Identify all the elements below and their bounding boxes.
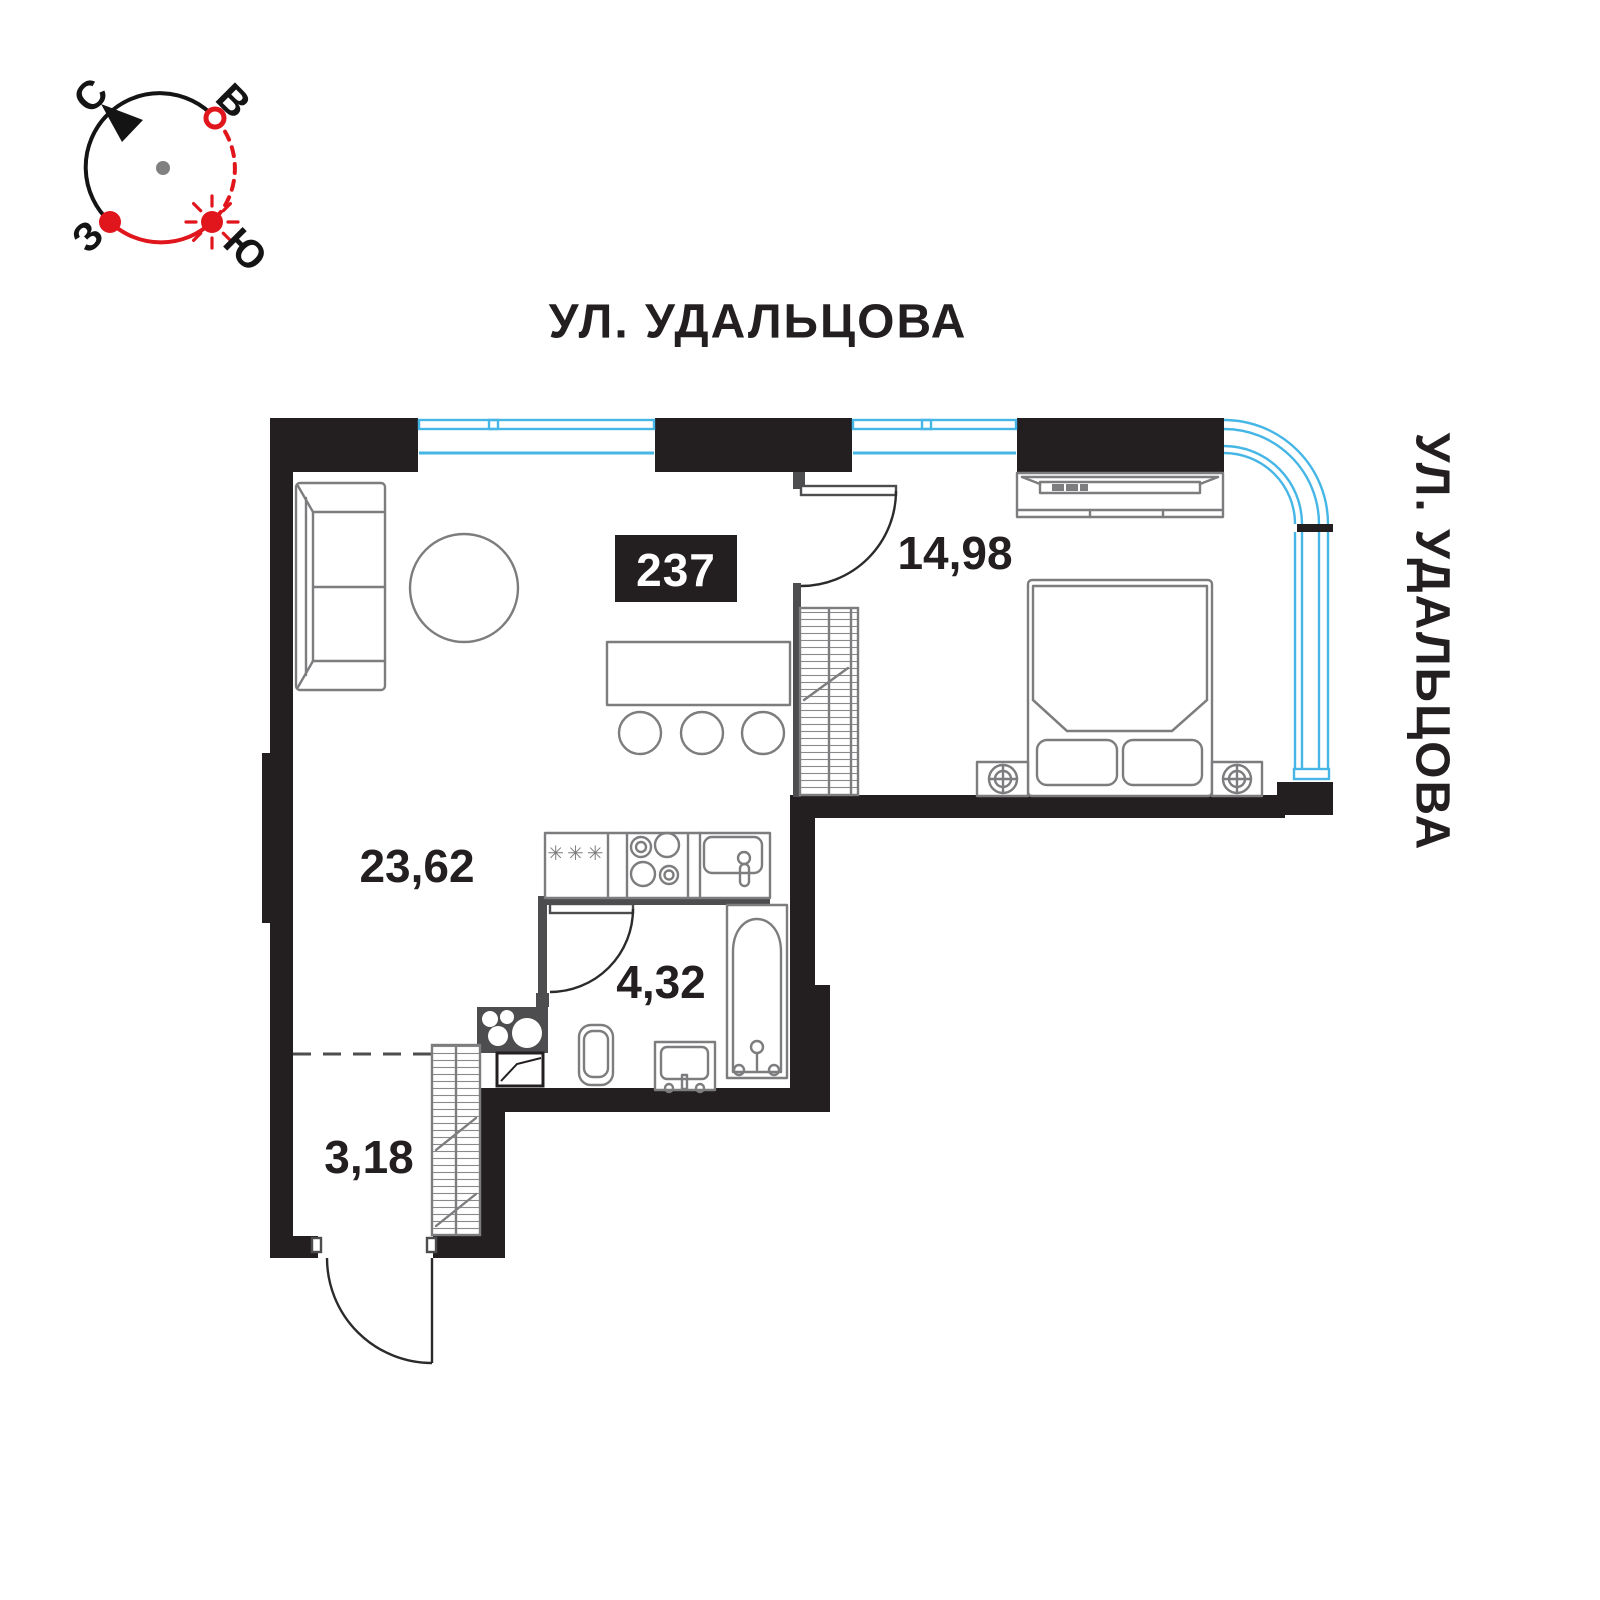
toilet xyxy=(579,1025,613,1085)
wall-top-right xyxy=(1017,418,1224,472)
bar-stool xyxy=(742,712,784,754)
kitchen-counter: ✳✳✳ xyxy=(545,833,770,898)
nightstand-left xyxy=(977,762,1028,796)
wall-window-tick xyxy=(1297,524,1333,532)
floorplan-page: С В З Ю УЛ. УДАЛЬЦОВА УЛ. УДАЛЬЦОВА xyxy=(0,0,1600,1600)
street-label-top: УЛ. УДАЛЬЦОВА xyxy=(549,296,968,349)
corner-cabinet xyxy=(497,1053,543,1086)
convector-unit xyxy=(1017,473,1223,517)
bedroom-door-leaf xyxy=(801,486,896,495)
wall-bathroom-right-upper xyxy=(790,816,815,988)
wall-bottom-right-of-door xyxy=(433,1236,487,1258)
wall-left xyxy=(270,418,293,1238)
bedroom-wardrobe xyxy=(800,608,858,795)
floorplan-drawing: С В З Ю УЛ. УДАЛЬЦОВА УЛ. УДАЛЬЦОВА xyxy=(0,0,1600,1600)
bed xyxy=(1028,580,1212,796)
kitchen-island xyxy=(607,642,790,754)
wall-top-middle xyxy=(655,418,852,472)
entrance-door-jamb-left xyxy=(312,1238,321,1252)
bathroom-door-leaf xyxy=(550,904,633,913)
area-label-bedroom: 14,98 xyxy=(897,527,1012,579)
area-label-hallway: 3,18 xyxy=(324,1131,414,1183)
wall-bathroom-left xyxy=(538,905,547,995)
round-table xyxy=(410,534,518,642)
washbasin xyxy=(655,1042,715,1092)
compass-center-dot xyxy=(156,161,170,175)
compass-west-dot-icon xyxy=(99,211,121,233)
area-label-bathroom: 4,32 xyxy=(616,956,706,1008)
bathtub xyxy=(727,905,787,1078)
wall-bedroom-bottom xyxy=(790,795,1285,818)
wall-bottom-left xyxy=(270,1236,318,1258)
wall-hallway-right xyxy=(481,1090,505,1258)
sofa xyxy=(296,483,385,690)
wall-bedroom-corner xyxy=(1277,782,1333,815)
apartment-number: 237 xyxy=(636,544,716,596)
bar-stool xyxy=(619,712,661,754)
street-label-right: УЛ. УДАЛЬЦОВА xyxy=(1406,433,1459,852)
wall-left-pilaster xyxy=(262,753,271,923)
wall-bathroom-right-lower xyxy=(790,985,830,1090)
washing-machine-unit xyxy=(477,1007,548,1053)
entrance-door-jamb-right xyxy=(427,1238,436,1252)
freezer-icon: ✳✳✳ xyxy=(547,841,606,865)
wall-stub-bathroom-left xyxy=(536,993,549,1007)
nightstand-right xyxy=(1212,762,1262,796)
wall-bathroom-bottom xyxy=(481,1088,830,1112)
hallway-wardrobe xyxy=(432,1045,480,1235)
apartment-number-badge: 237 xyxy=(615,535,737,602)
bar-stool xyxy=(681,712,723,754)
area-label-living: 23,62 xyxy=(359,840,474,892)
